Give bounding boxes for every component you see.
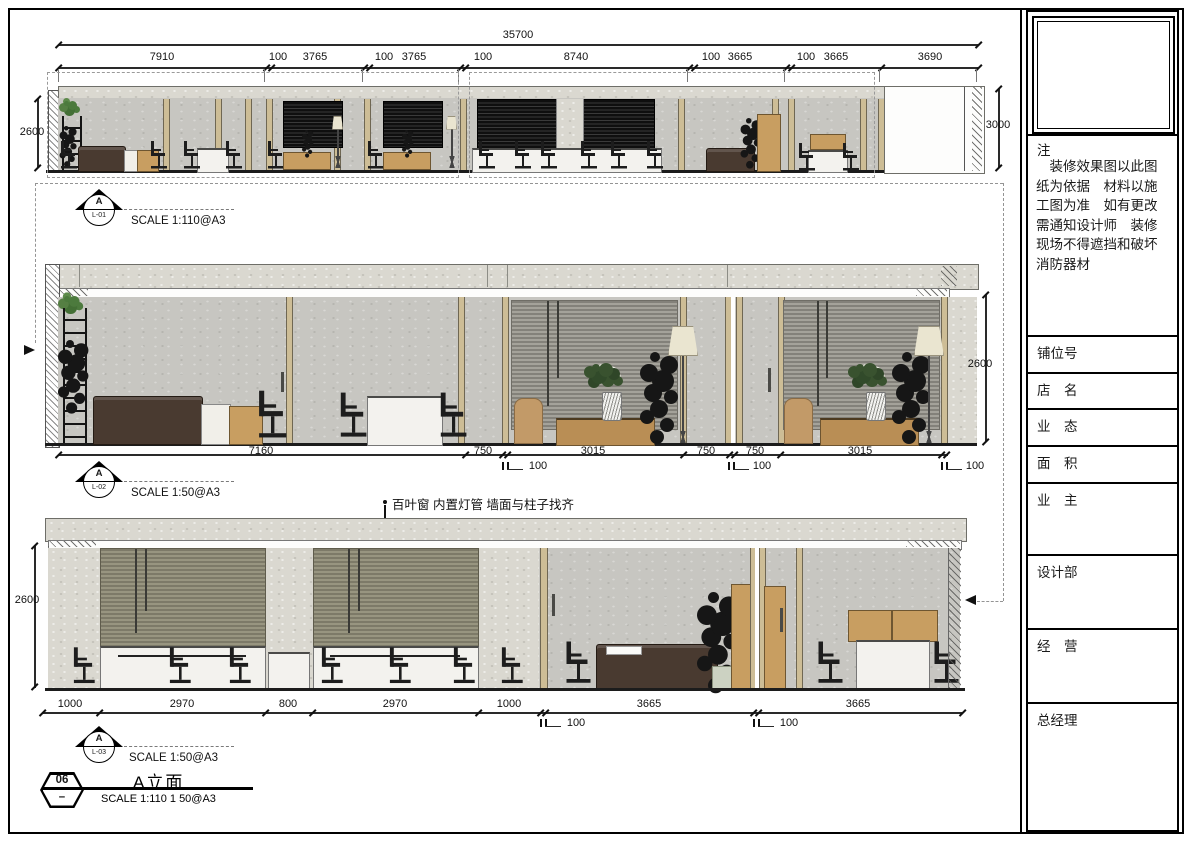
bulkhead-hatch xyxy=(58,289,88,296)
dim-label: 3690 xyxy=(918,51,942,63)
flower-bouquet xyxy=(592,364,600,372)
sheet-number-suffix: – xyxy=(40,791,84,803)
wall-joint xyxy=(964,87,965,171)
marker-divider xyxy=(80,481,118,482)
beam-joint xyxy=(487,265,488,287)
row-label: 面 积 xyxy=(1037,452,1078,472)
row-label: 铺位号 xyxy=(1037,342,1078,362)
dim-label: 3000 xyxy=(986,119,1010,131)
dim-label: 100 xyxy=(375,51,393,63)
office-chair xyxy=(70,646,96,688)
wall-hatch xyxy=(948,548,961,688)
row-label: 设计部 xyxy=(1037,561,1078,581)
dim-line xyxy=(34,545,36,688)
beam-joint xyxy=(727,265,728,287)
plant-shelf xyxy=(63,308,87,443)
titleblock-row-shop-name: 店 名 xyxy=(1028,372,1177,410)
dim-label: 3765 xyxy=(402,51,426,63)
office-chair xyxy=(336,391,368,442)
wall-cabinet xyxy=(848,610,938,642)
dim-jog xyxy=(728,462,730,470)
dim-label: 100 xyxy=(753,460,771,472)
marker-tail xyxy=(124,209,234,210)
titleblock-row-shop-no: 铺位号 xyxy=(1028,335,1177,374)
dim-label: 2970 xyxy=(383,698,407,710)
dim-label: 750 xyxy=(697,445,715,457)
dim-label: 3665 xyxy=(846,698,870,710)
dim-line xyxy=(507,469,523,470)
dim-label: 1000 xyxy=(497,698,521,710)
potted-plant xyxy=(64,296,70,302)
dim-label: 100 xyxy=(966,460,984,472)
bulkhead-hatch xyxy=(916,289,947,296)
titleblock-row-owner: 业 主 xyxy=(1028,482,1177,556)
dim-label: 100 xyxy=(567,717,585,729)
dim-label: 2970 xyxy=(170,698,194,710)
dim-label: 100 xyxy=(780,717,798,729)
dim-label: 100 xyxy=(269,51,287,63)
dried-plant xyxy=(66,340,74,348)
dim-label: 800 xyxy=(279,698,297,710)
dim-label: 3665 xyxy=(824,51,848,63)
dashed-extent-box xyxy=(469,72,875,178)
dim-line xyxy=(758,726,774,727)
dim-label: 7910 xyxy=(150,51,174,63)
dim-jog xyxy=(502,462,504,470)
office-chair xyxy=(318,646,344,688)
section-marker-l01: A L-01 xyxy=(75,188,123,230)
office-chair xyxy=(226,646,252,688)
window-blind xyxy=(100,548,266,653)
row-label: 店 名 xyxy=(1037,379,1078,399)
meeting-table xyxy=(367,396,443,446)
cabinet xyxy=(201,404,231,445)
section-marker-l02: A L-02 xyxy=(75,460,123,502)
marker-divider xyxy=(80,209,118,210)
sofa xyxy=(93,396,203,445)
dim-label: 3765 xyxy=(303,51,327,63)
view-direction-arrow xyxy=(24,345,35,355)
dim-label: 3665 xyxy=(728,51,752,63)
dim-jog xyxy=(941,462,943,470)
dim-label: 1000 xyxy=(58,698,82,710)
bulkhead-hatch xyxy=(906,541,960,547)
office-chair xyxy=(386,646,412,688)
dim-line xyxy=(946,469,962,470)
cabinet-divider xyxy=(891,610,893,640)
dim-jog xyxy=(540,719,542,727)
side-table xyxy=(268,652,310,691)
door-handle xyxy=(768,368,771,392)
note-section xyxy=(1028,134,1177,136)
table xyxy=(856,640,930,691)
marker-id: L-03 xyxy=(75,749,123,756)
marker-divider xyxy=(80,746,118,747)
office-chair xyxy=(436,391,468,442)
sheet-scale: SCALE 1:110 1 50@A3 xyxy=(101,793,216,805)
dim-line xyxy=(545,726,561,727)
sheet-number: 06 xyxy=(40,774,84,786)
beam-joint xyxy=(507,265,508,287)
titleblock-row-area: 面 积 xyxy=(1028,445,1177,484)
note-title: 注 xyxy=(1037,139,1051,159)
door-handle xyxy=(780,608,783,632)
floor-lamp xyxy=(668,326,698,443)
floor-line xyxy=(45,688,965,691)
marker-letter: A xyxy=(75,733,123,744)
section-cut-line xyxy=(35,183,1003,184)
vase xyxy=(866,392,886,421)
dim-line xyxy=(42,712,962,714)
dim-label: 2600 xyxy=(20,126,44,138)
end-wall xyxy=(948,297,977,443)
logo-box xyxy=(1032,16,1175,134)
row-label: 总经理 xyxy=(1037,709,1078,729)
sheet-number-hexagon: 06 – xyxy=(40,772,84,808)
window-blind xyxy=(313,548,479,653)
view-direction-arrow xyxy=(965,595,976,605)
view-scale: SCALE 1:50@A3 xyxy=(131,487,220,499)
dried-plant xyxy=(708,592,719,603)
beam-hatch xyxy=(941,266,957,286)
titleblock-row-business-type: 业 态 xyxy=(1028,408,1177,447)
section-cut-line xyxy=(977,601,1003,602)
dim-label: 3015 xyxy=(848,445,872,457)
armchair xyxy=(784,398,813,444)
office-chair xyxy=(562,640,592,688)
marker-id: L-01 xyxy=(75,212,123,219)
dim-line xyxy=(58,67,978,69)
glass-frame xyxy=(736,297,743,443)
view-scale: SCALE 1:110@A3 xyxy=(131,215,226,227)
office-chair xyxy=(166,646,192,688)
armchair xyxy=(514,398,543,444)
marker-id: L-02 xyxy=(75,484,123,491)
dim-label: 750 xyxy=(746,445,764,457)
dim-label: 35700 xyxy=(503,29,534,41)
sheet-title: A立面 xyxy=(133,768,184,793)
row-label: 经 营 xyxy=(1037,635,1078,655)
dim-label: 100 xyxy=(702,51,720,63)
dim-line xyxy=(58,44,978,46)
dim-label: 100 xyxy=(797,51,815,63)
dim-label: 100 xyxy=(529,460,547,472)
papers xyxy=(606,646,642,655)
ceiling-beam xyxy=(45,264,979,290)
bulkhead-hatch xyxy=(48,541,96,547)
marker-tail xyxy=(124,746,234,747)
view-scale: SCALE 1:50@A3 xyxy=(129,752,218,764)
dim-label: 2600 xyxy=(15,594,39,606)
titleblock-row-general-manager: 总经理 xyxy=(1028,702,1177,832)
office-chair xyxy=(814,640,844,688)
beam-joint xyxy=(79,265,80,287)
dim-label: 3015 xyxy=(581,445,605,457)
dim-jog xyxy=(753,719,755,727)
dim-label: 750 xyxy=(474,445,492,457)
extension-line xyxy=(976,69,977,82)
office-chair xyxy=(450,646,476,688)
dim-label: 2600 xyxy=(968,358,992,370)
wall-hatch xyxy=(972,87,982,171)
vase xyxy=(602,392,622,421)
section-cut-line xyxy=(1003,183,1004,601)
dried-plant xyxy=(650,352,660,362)
extension-line xyxy=(879,69,880,82)
glass-frame xyxy=(502,297,509,443)
titleblock-row-operations: 经 营 xyxy=(1028,628,1177,704)
title-block: 注 装修效果图以此图纸为依据 材料以施工图为准 如有更改需通知设计师 装修现场不… xyxy=(1026,10,1179,832)
dim-label: 100 xyxy=(474,51,492,63)
section-marker-l03: A L-03 xyxy=(75,725,123,767)
flower-bouquet xyxy=(856,364,864,372)
glass-frame xyxy=(540,548,548,688)
marker-tail xyxy=(124,481,234,482)
glass-frame xyxy=(796,548,803,688)
office-chair xyxy=(254,389,288,443)
leader-dot xyxy=(383,500,387,504)
section-cut-line xyxy=(35,183,36,343)
wood-door xyxy=(764,586,786,690)
ceiling-beam xyxy=(45,518,967,542)
wood-table xyxy=(556,418,655,446)
marker-letter: A xyxy=(75,468,123,479)
logo-box-inner xyxy=(1037,21,1170,129)
dim-label: 7160 xyxy=(249,445,273,457)
dashed-extent-box xyxy=(47,72,459,178)
row-label: 业 态 xyxy=(1037,415,1078,435)
marker-letter: A xyxy=(75,196,123,207)
end-wall xyxy=(884,86,985,174)
titleblock-row-design-dept: 设计部 xyxy=(1028,554,1177,630)
note-body: 装修效果图以此图纸为依据 材料以施工图为准 如有更改需通知设计师 装修现场不得遮… xyxy=(1036,157,1170,274)
drawing-sheet: 35700 7910 100 3765 100 3765 100 8740 10… xyxy=(0,0,1191,842)
dried-plant xyxy=(902,352,912,362)
door-handle xyxy=(552,594,555,616)
dim-label: 8740 xyxy=(564,51,588,63)
floor-lamp xyxy=(914,326,944,443)
dim-line xyxy=(733,469,749,470)
office-chair xyxy=(498,646,524,688)
dim-label: 3665 xyxy=(637,698,661,710)
mullion xyxy=(731,297,735,443)
wood-table xyxy=(820,418,919,446)
titleblock-divider xyxy=(1020,8,1022,832)
row-label: 业 主 xyxy=(1037,489,1078,509)
annotation-text: 百叶窗 内置灯管 墙面与柱子找齐 xyxy=(392,494,574,513)
